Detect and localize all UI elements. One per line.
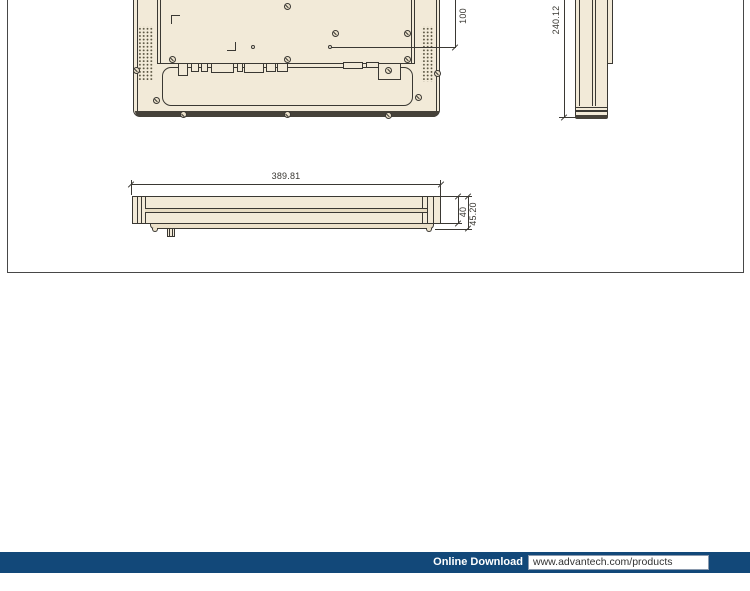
dim-label-width: 389.81 — [261, 171, 311, 181]
vesa-corner-mark — [171, 15, 180, 16]
screw-icon — [332, 30, 339, 37]
rear-lower-panel — [162, 67, 413, 106]
screw-icon — [180, 111, 187, 118]
bottom-foot — [152, 228, 158, 232]
end-cap-line — [137, 197, 138, 223]
footer-url-text: www.advantech.com/products — [533, 556, 672, 568]
extension-line — [131, 180, 132, 195]
screw-icon — [153, 97, 160, 104]
io-connector — [178, 63, 188, 76]
io-connector — [237, 63, 243, 72]
io-connector — [343, 62, 363, 69]
dim-label-depth-body: 40 — [458, 192, 468, 232]
screw-icon — [284, 111, 291, 118]
screw-icon — [385, 67, 392, 74]
screw-icon — [434, 70, 441, 77]
extension-line — [440, 180, 441, 196]
online-download-label: Online Download — [403, 552, 523, 573]
dim-label-height: 240.12 — [551, 0, 561, 42]
bottom-groove — [145, 208, 427, 213]
screw-icon — [404, 56, 411, 63]
datasheet-page: 100 240.12 389.81 40 45.20 Online Downlo… — [0, 0, 750, 591]
end-cap-line — [433, 197, 434, 223]
screw-icon — [404, 30, 411, 37]
end-cap-line — [141, 197, 142, 223]
io-connector — [244, 63, 264, 73]
screw-icon — [385, 112, 392, 119]
screw-icon — [415, 94, 422, 101]
io-connector — [211, 63, 234, 73]
side-panel-line — [579, 0, 580, 106]
io-connector — [201, 63, 208, 72]
dim-line — [564, 0, 565, 118]
dim-label-depth-total: 45.20 — [468, 194, 478, 234]
bottom-base-strip — [150, 223, 434, 229]
dim-leader-line — [331, 47, 456, 48]
vesa-corner-mark — [171, 15, 172, 24]
io-connector — [277, 63, 288, 72]
bottom-foot — [426, 228, 432, 232]
side-rear-slab — [607, 0, 613, 64]
vent-grille-left — [137, 26, 153, 81]
vesa-hole — [251, 45, 255, 49]
screw-icon — [169, 56, 176, 63]
dim-label-vesa: 100 — [458, 0, 468, 36]
footer-url-box[interactable]: www.advantech.com/products — [528, 555, 709, 570]
screw-icon — [284, 56, 291, 63]
io-connector — [266, 63, 276, 72]
vent-grille-right — [421, 26, 433, 82]
side-groove-lines — [592, 0, 596, 106]
bottom-button-inner — [169, 229, 173, 237]
dim-line — [455, 0, 456, 48]
io-connector — [191, 63, 199, 72]
side-bottom-rim — [575, 115, 608, 119]
dim-line — [131, 184, 442, 185]
screw-icon — [133, 67, 140, 74]
screw-icon — [284, 3, 291, 10]
vesa-corner-mark — [235, 42, 236, 51]
